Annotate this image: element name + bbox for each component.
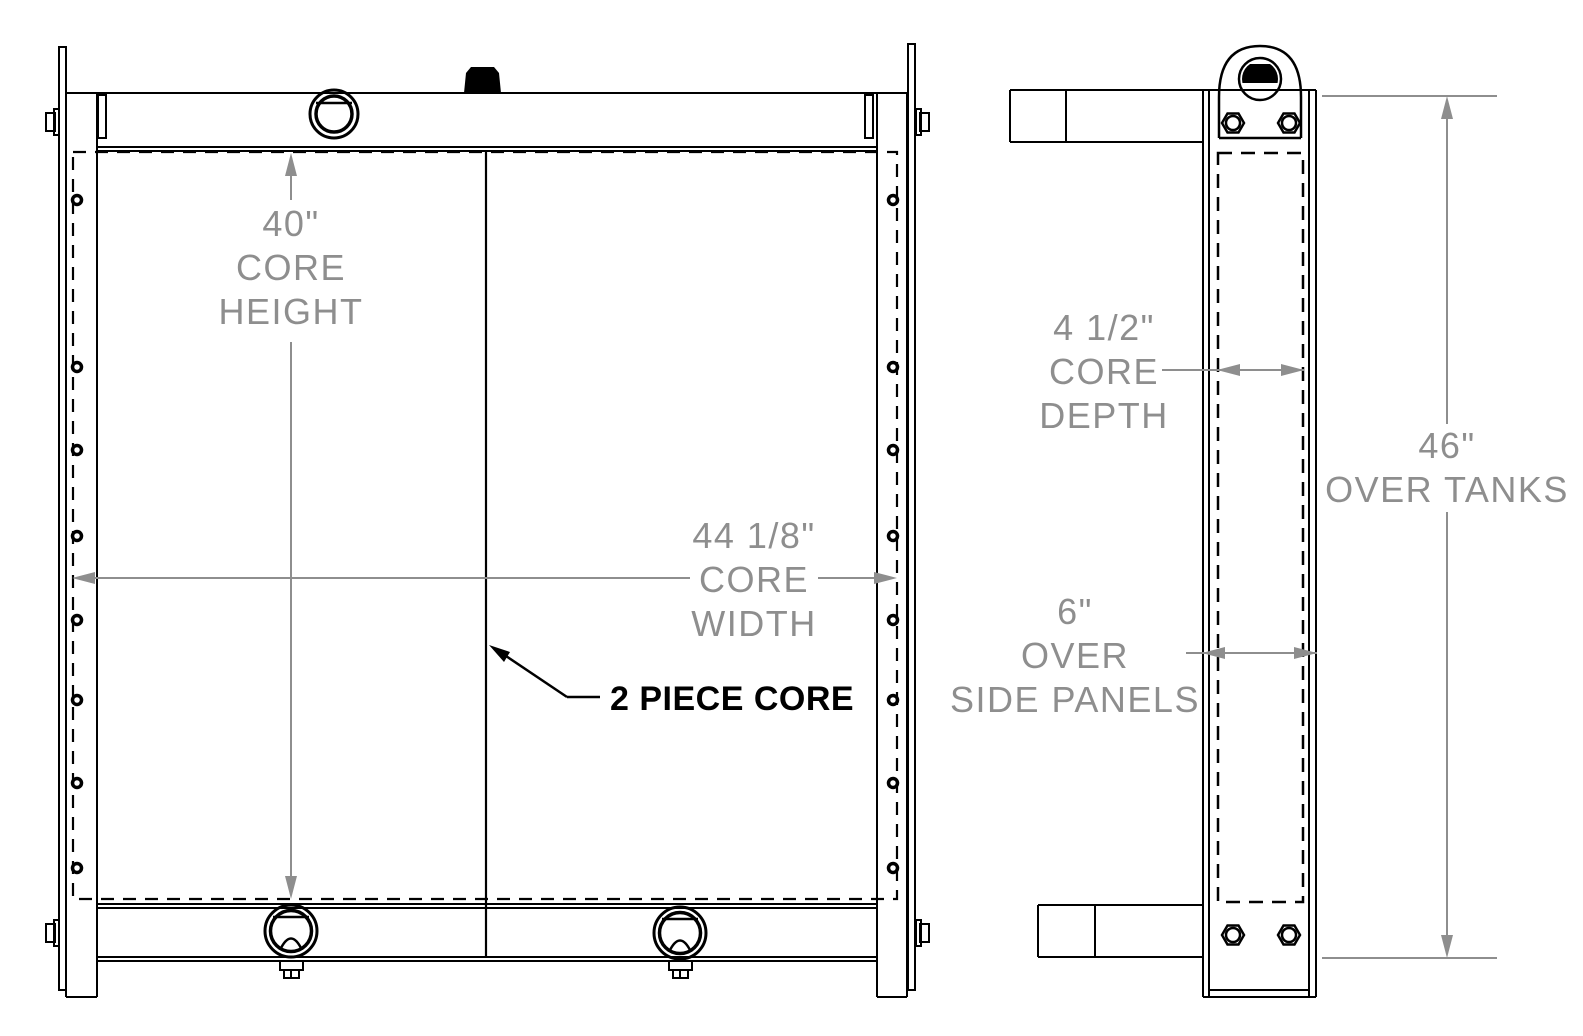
dimension-text: DEPTH	[984, 394, 1224, 438]
dimension-text: WIDTH	[634, 602, 874, 646]
dimension-value: 44 1/8"	[634, 514, 874, 558]
drain-fitting	[669, 961, 692, 978]
top-tank	[66, 67, 908, 151]
core-width-label: 44 1/8" CORE WIDTH	[634, 514, 874, 646]
inlet-pipe	[1010, 90, 1203, 142]
side-column	[1203, 90, 1316, 997]
tank-joint	[98, 95, 106, 138]
tank-joint	[865, 95, 873, 138]
over-side-panels-label: 6" OVER SIDE PANELS	[925, 590, 1225, 722]
dimension-text: OVER TANKS	[1297, 468, 1583, 512]
core-depth-label: 4 1/2" CORE DEPTH	[984, 306, 1224, 438]
dimension-value: 46"	[1297, 424, 1583, 468]
two-piece-core-leader	[489, 645, 600, 697]
dimension-text: CORE	[984, 350, 1224, 394]
dimension-text: OVER	[925, 634, 1225, 678]
note-text: 2 PIECE CORE	[610, 680, 854, 718]
right-flange-plate	[908, 44, 929, 990]
core-height-label: 40" CORE HEIGHT	[171, 202, 411, 334]
cap-fitting	[464, 67, 501, 93]
dimension-text: HEIGHT	[171, 290, 411, 334]
outlet-port	[654, 907, 706, 959]
radiator-technical-drawing: 40" CORE HEIGHT 44 1/8" CORE WIDTH 2 PIE…	[0, 0, 1583, 1036]
filler-neck	[310, 90, 358, 138]
right-side-channel	[877, 93, 907, 997]
over-tanks-label: 46" OVER TANKS	[1297, 424, 1583, 512]
two-piece-core-note: 2 PIECE CORE	[610, 680, 854, 719]
left-side-channel	[66, 93, 97, 997]
dimension-text: CORE	[171, 246, 411, 290]
drain-fitting	[280, 961, 303, 978]
core-depth-outline	[1218, 153, 1303, 902]
side-view	[1010, 46, 1316, 997]
dimension-value: 40"	[171, 202, 411, 246]
outlet-port	[265, 905, 317, 957]
left-flange-plate	[46, 47, 66, 990]
filler-neck-side	[1219, 46, 1301, 138]
dimension-value: 6"	[925, 590, 1225, 634]
over-tanks-dimension	[1322, 96, 1497, 958]
dimension-text: SIDE PANELS	[925, 678, 1225, 722]
outlet-pipe	[1038, 905, 1203, 957]
hex-bolts	[1222, 114, 1300, 945]
dimension-value: 4 1/2"	[984, 306, 1224, 350]
dimension-text: CORE	[634, 558, 874, 602]
